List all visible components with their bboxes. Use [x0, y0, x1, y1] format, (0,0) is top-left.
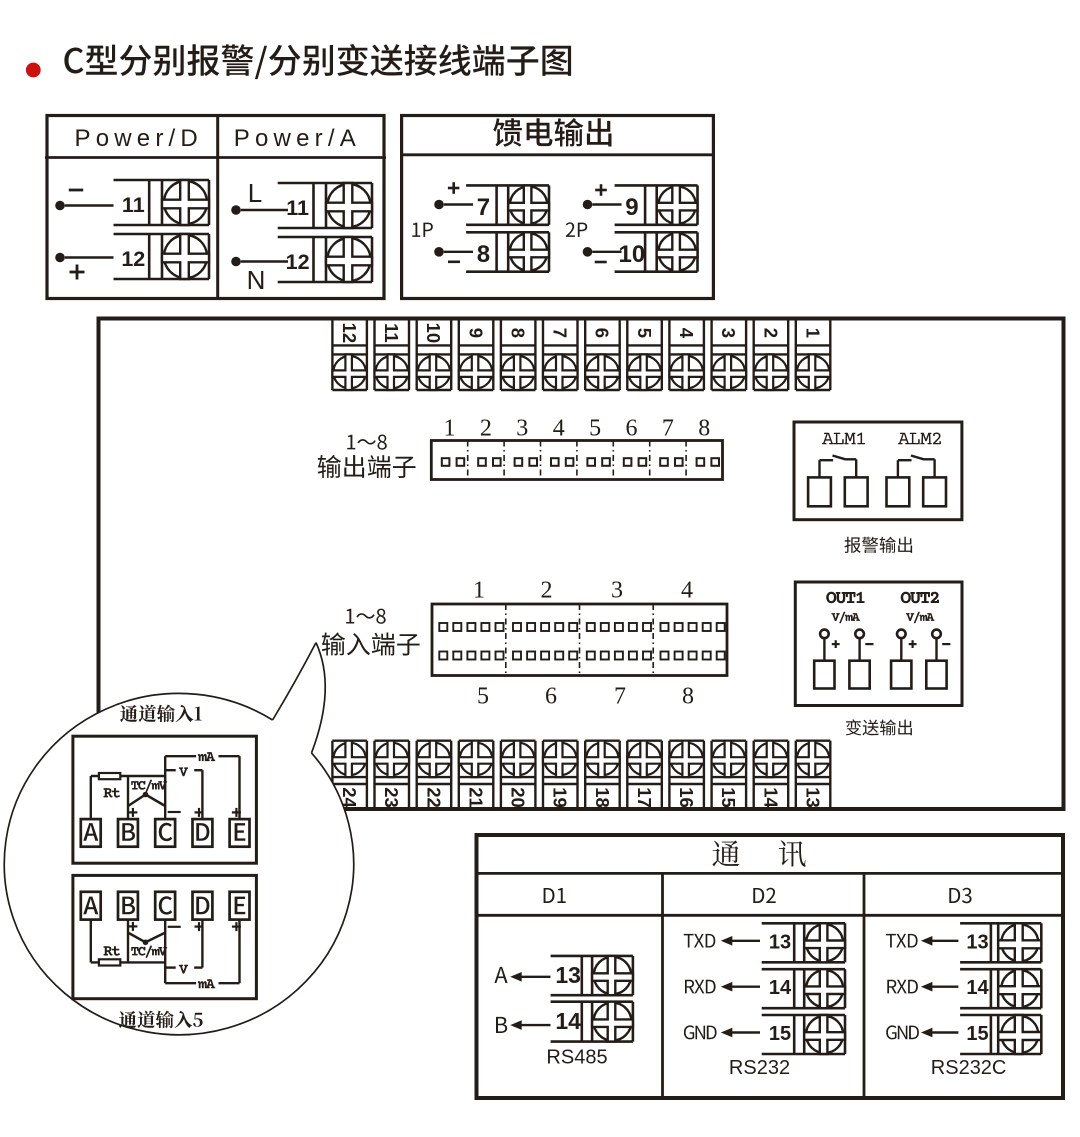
- svg-text:2: 2: [760, 328, 781, 338]
- svg-text:14: 14: [760, 787, 781, 808]
- svg-text:12: 12: [286, 250, 310, 274]
- svg-text:9: 9: [465, 328, 486, 338]
- svg-text:11: 11: [286, 196, 309, 220]
- svg-text:23: 23: [381, 787, 402, 808]
- svg-text:10: 10: [423, 323, 444, 344]
- svg-text:7: 7: [662, 416, 674, 442]
- svg-text:22: 22: [423, 787, 444, 808]
- svg-text:5: 5: [589, 416, 601, 442]
- svg-text:1: 1: [473, 578, 485, 604]
- svg-text:13: 13: [769, 931, 791, 953]
- svg-text:N: N: [247, 265, 266, 295]
- svg-text:L: L: [248, 178, 262, 208]
- svg-text:15: 15: [966, 1023, 988, 1045]
- svg-text:21: 21: [465, 787, 486, 808]
- svg-text:10: 10: [619, 241, 646, 268]
- svg-text:17: 17: [634, 787, 655, 808]
- svg-text:6: 6: [626, 416, 638, 442]
- svg-text:4: 4: [676, 328, 697, 339]
- svg-text:8: 8: [682, 684, 694, 710]
- svg-text:1: 1: [802, 328, 823, 338]
- svg-text:4: 4: [681, 578, 693, 604]
- svg-text:18: 18: [592, 787, 613, 808]
- svg-text:12: 12: [121, 247, 145, 271]
- svg-text:16: 16: [676, 787, 697, 808]
- svg-text:7: 7: [477, 194, 490, 221]
- svg-text:1: 1: [444, 416, 456, 442]
- svg-text:8: 8: [508, 328, 529, 338]
- svg-text:8: 8: [477, 241, 490, 268]
- svg-text:3: 3: [516, 416, 528, 442]
- svg-text:14: 14: [555, 1008, 581, 1034]
- svg-text:7: 7: [550, 328, 571, 338]
- svg-text:2: 2: [480, 416, 492, 442]
- svg-text:13: 13: [966, 931, 988, 953]
- svg-text:12: 12: [339, 323, 360, 344]
- svg-text:RS232: RS232: [729, 1057, 790, 1079]
- svg-text:3: 3: [718, 328, 739, 338]
- svg-text:6: 6: [592, 328, 613, 338]
- svg-text:3: 3: [611, 578, 623, 604]
- svg-text:15: 15: [718, 787, 739, 808]
- svg-text:9: 9: [625, 194, 638, 221]
- svg-text:13: 13: [803, 787, 824, 808]
- svg-text:14: 14: [966, 977, 989, 999]
- svg-text:11: 11: [381, 323, 402, 343]
- svg-text:6: 6: [545, 684, 557, 710]
- svg-text:4: 4: [553, 416, 565, 442]
- svg-text:Power/D: Power/D: [75, 125, 203, 152]
- svg-text:RS485: RS485: [546, 1047, 607, 1069]
- svg-text:RS232C: RS232C: [931, 1057, 1007, 1079]
- svg-text:2: 2: [541, 578, 553, 604]
- svg-text:19: 19: [550, 787, 571, 808]
- svg-text:13: 13: [555, 962, 581, 988]
- svg-text:11: 11: [122, 193, 145, 217]
- svg-text:5: 5: [634, 328, 655, 338]
- svg-text:7: 7: [614, 684, 626, 710]
- svg-text:Power/A: Power/A: [234, 125, 361, 152]
- svg-text:5: 5: [477, 684, 489, 710]
- svg-text:8: 8: [698, 416, 710, 442]
- svg-text:20: 20: [508, 787, 529, 808]
- svg-text:15: 15: [769, 1023, 791, 1045]
- svg-text:14: 14: [769, 977, 792, 999]
